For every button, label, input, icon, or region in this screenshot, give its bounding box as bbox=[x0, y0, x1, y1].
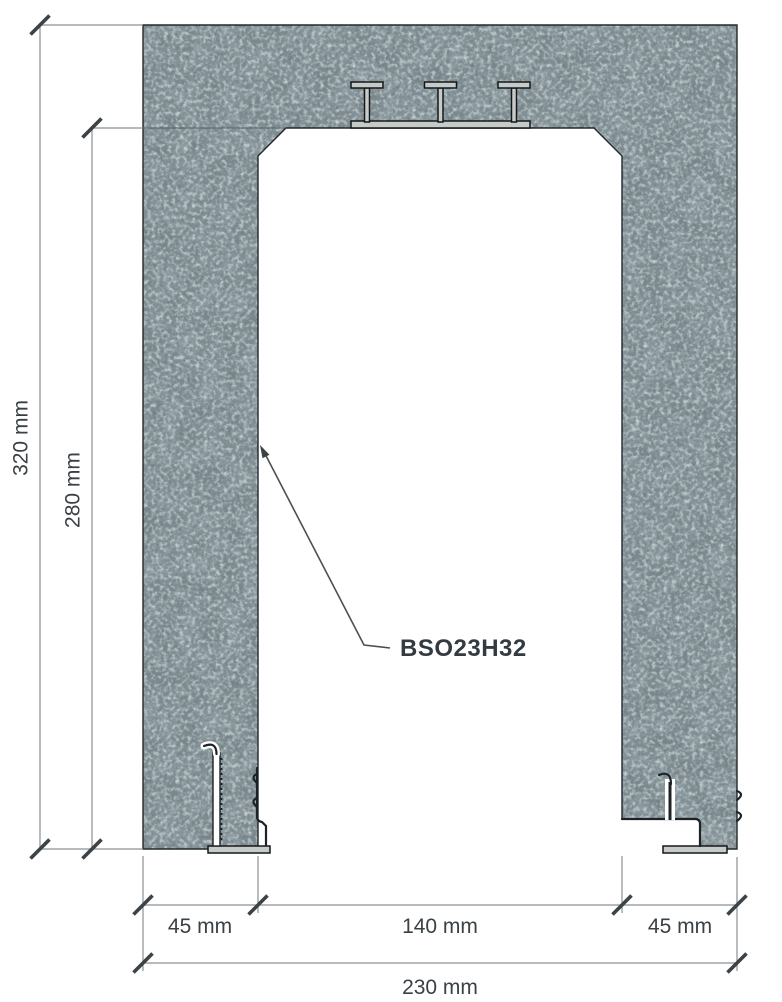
part-callout: BSO23H32 bbox=[260, 445, 527, 662]
concrete-section bbox=[135, 17, 745, 857]
right-base-plate bbox=[663, 846, 727, 853]
part-label: BSO23H32 bbox=[400, 635, 527, 662]
leader-arrow-icon bbox=[260, 445, 270, 458]
leader-line bbox=[262, 448, 390, 648]
right-rebate-lining bbox=[622, 819, 700, 846]
dim-label-total-width: 230 mm bbox=[402, 976, 478, 999]
dim-label-left-wall: 45 mm bbox=[168, 915, 232, 938]
left-anchor-slot bbox=[213, 753, 220, 846]
drawing-canvas: 320 mm 280 mm 45 mm 140 mm 45 mm 230 mm … bbox=[0, 0, 782, 1002]
left-base-plate bbox=[208, 846, 270, 853]
dim-label-right-wall: 45 mm bbox=[648, 915, 712, 938]
technical-drawing: 320 mm 280 mm 45 mm 140 mm 45 mm 230 mm … bbox=[0, 0, 782, 1002]
dim-label-opening-width: 140 mm bbox=[402, 915, 478, 938]
dim-label-total-height: 320 mm bbox=[10, 400, 33, 476]
dim-label-opening-height: 280 mm bbox=[62, 452, 85, 528]
